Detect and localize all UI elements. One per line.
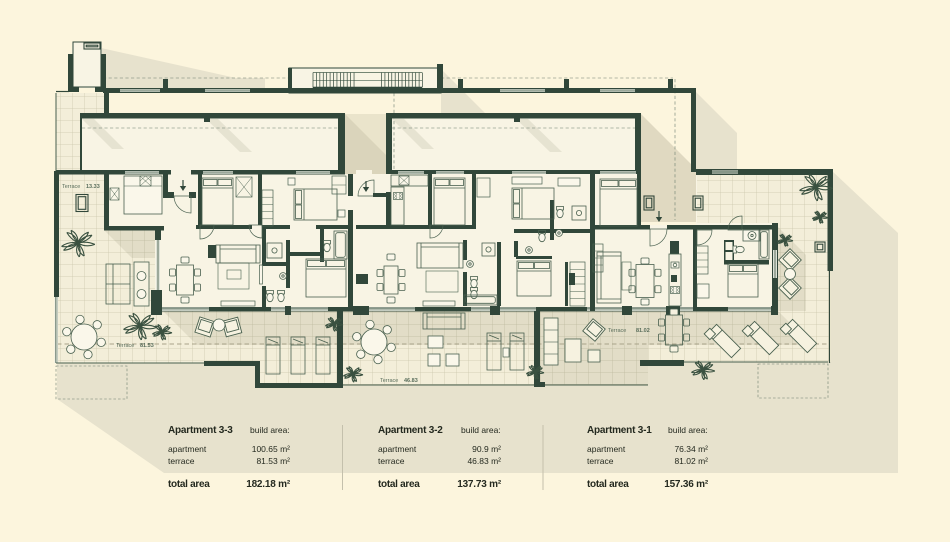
svg-text:Apartment 3-3: Apartment 3-3 [168,425,233,436]
svg-text:81.53: 81.53 [140,343,154,349]
svg-text:Terrace: Terrace [608,328,626,334]
svg-text:46.83 m²: 46.83 m² [467,456,501,466]
svg-text:terrace: terrace [587,456,614,466]
svg-text:Apartment 3-1: Apartment 3-1 [587,425,652,436]
svg-text:81.02: 81.02 [636,328,650,334]
svg-text:13.33: 13.33 [86,184,100,190]
svg-text:build area:: build area: [668,425,708,435]
svg-text:46.83: 46.83 [404,378,418,384]
svg-text:Terrace: Terrace [62,184,80,190]
svg-text:137.73 m²: 137.73 m² [457,479,502,490]
svg-text:81.02 m²: 81.02 m² [674,456,708,466]
svg-text:terrace: terrace [378,456,405,466]
svg-text:157.36 m²: 157.36 m² [664,479,709,490]
svg-text:build area:: build area: [250,425,290,435]
svg-text:81.53 m²: 81.53 m² [256,456,290,466]
svg-text:Terrace: Terrace [116,343,134,349]
svg-text:total area: total area [587,479,629,490]
svg-text:apartment: apartment [378,444,417,454]
svg-text:total area: total area [378,479,420,490]
svg-text:build area:: build area: [461,425,501,435]
svg-text:Apartment 3-2: Apartment 3-2 [378,425,443,436]
svg-text:90.9 m²: 90.9 m² [472,444,501,454]
svg-text:100.65 m²: 100.65 m² [252,444,290,454]
svg-text:apartment: apartment [587,444,626,454]
svg-text:terrace: terrace [168,456,195,466]
svg-text:76.34 m²: 76.34 m² [674,444,708,454]
svg-text:total area: total area [168,479,210,490]
svg-text:182.18 m²: 182.18 m² [246,479,291,490]
svg-text:apartment: apartment [168,444,207,454]
svg-text:Terrace: Terrace [380,378,398,384]
